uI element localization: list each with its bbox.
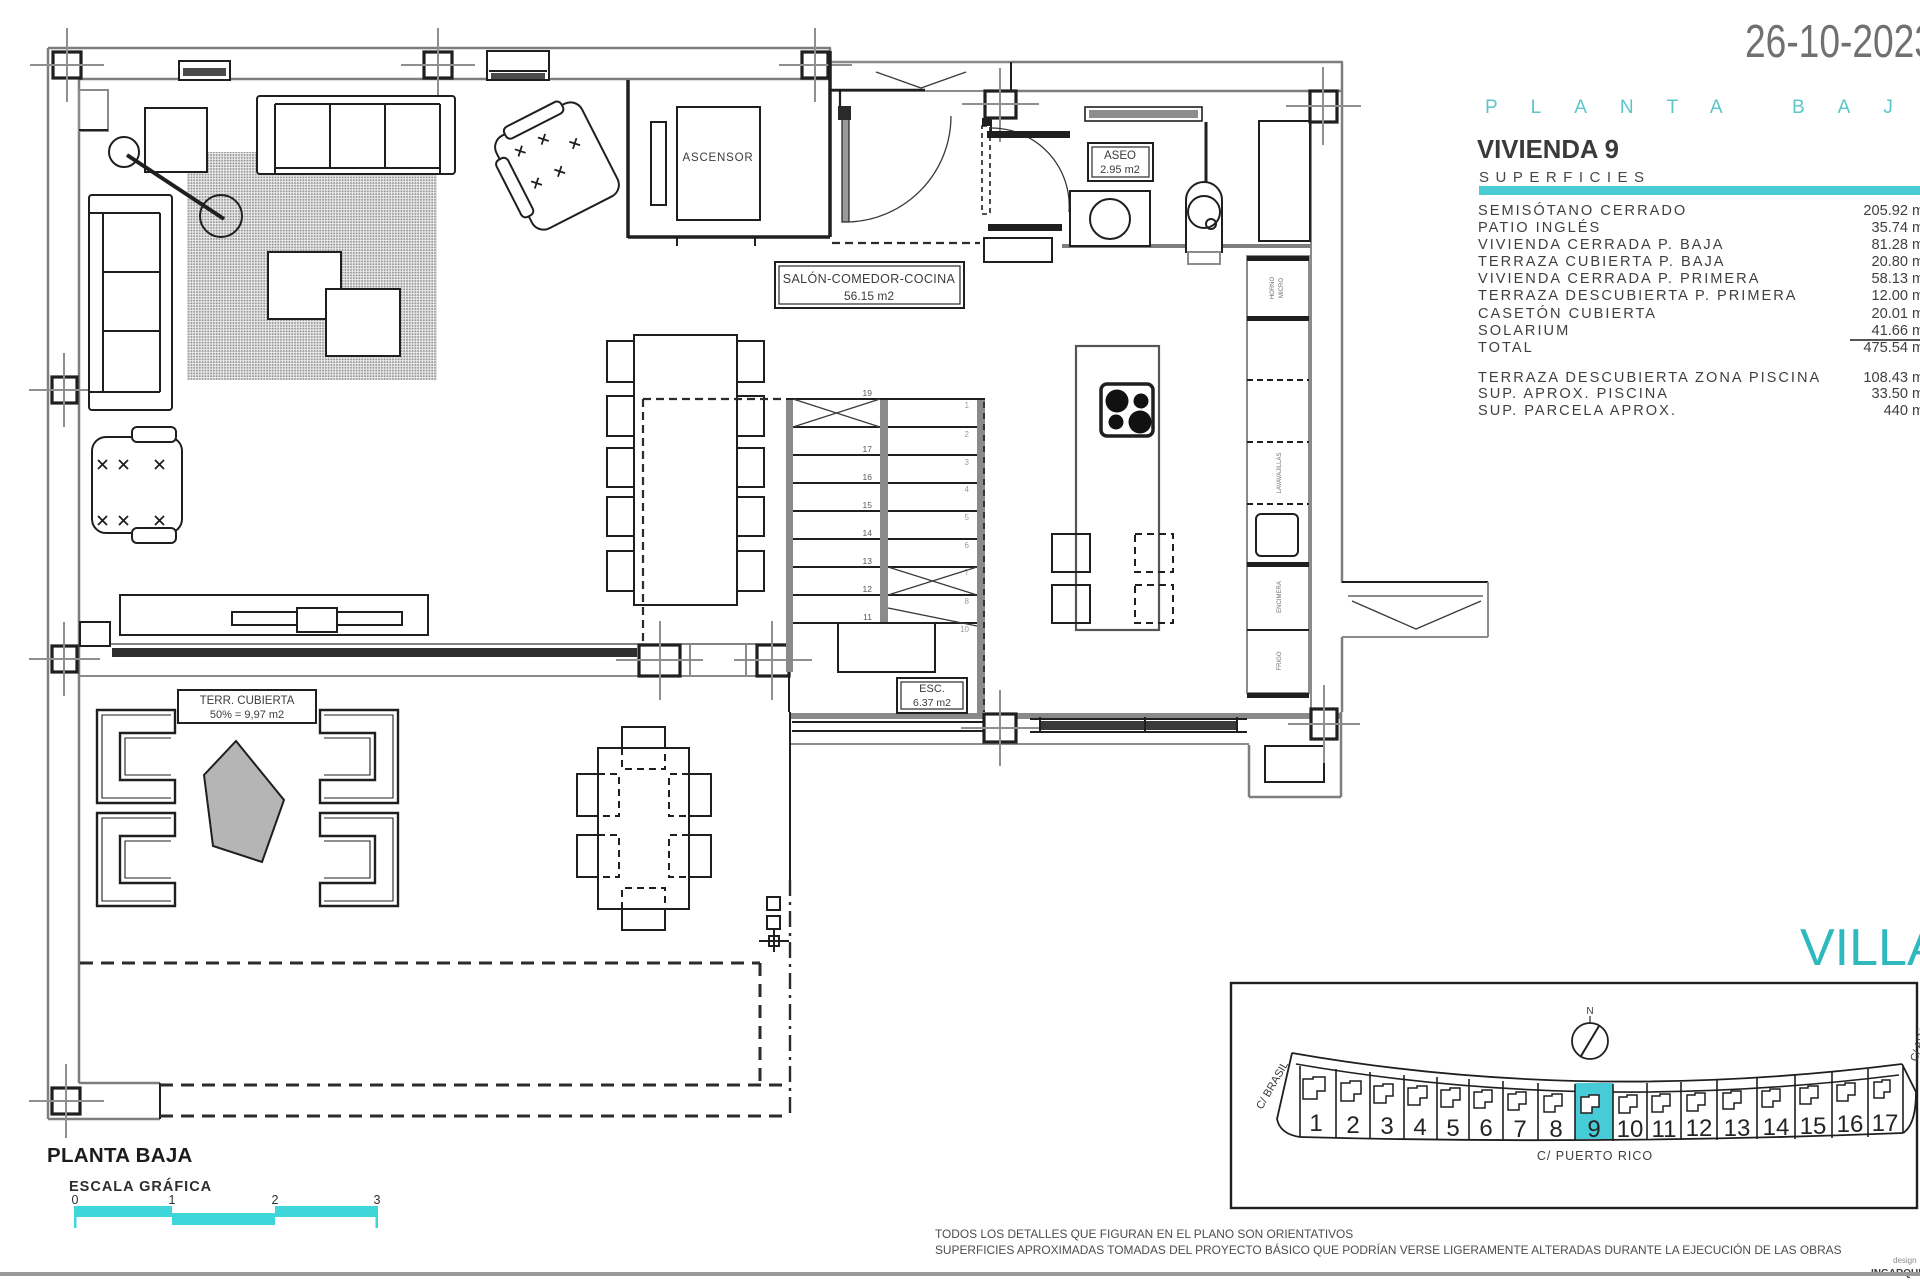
svg-text:14: 14 <box>863 528 873 538</box>
svg-text:SUPERFICIES APROXIMADAS TOMADA: SUPERFICIES APROXIMADAS TOMADAS DEL PROY… <box>935 1242 1842 1257</box>
svg-text:C/ PUERTO RICO: C/ PUERTO RICO <box>1537 1149 1653 1163</box>
svg-text:6: 6 <box>1479 1115 1492 1142</box>
svg-text:41.66: 41.66 <box>1871 323 1908 339</box>
svg-text:ASEO: ASEO <box>1104 150 1136 162</box>
svg-text:MICRO: MICRO <box>1279 278 1285 298</box>
svg-text:4: 4 <box>965 485 970 494</box>
svg-text:13: 13 <box>863 556 873 566</box>
svg-text:12: 12 <box>863 584 873 594</box>
svg-text:1: 1 <box>965 401 970 410</box>
svg-text:VILLAS: VILLAS <box>1800 919 1920 977</box>
svg-text:SUPERFICIES: SUPERFICIES <box>1479 169 1651 186</box>
svg-text:2: 2 <box>1346 1112 1359 1139</box>
svg-text:SUP. PARCELA APROX.: SUP. PARCELA APROX. <box>1478 403 1677 419</box>
svg-text:81.28: 81.28 <box>1871 237 1908 253</box>
svg-text:10: 10 <box>960 625 969 634</box>
svg-text:m2: m2 <box>1912 288 1920 304</box>
svg-text:m2: m2 <box>1912 370 1920 386</box>
svg-text:58.13: 58.13 <box>1871 271 1908 287</box>
svg-text:3: 3 <box>1380 1113 1393 1140</box>
svg-text:m2: m2 <box>1912 403 1920 419</box>
svg-text:TERRAZA CUBIERTA P. BAJA: TERRAZA CUBIERTA P. BAJA <box>1478 254 1726 270</box>
svg-text:8: 8 <box>965 597 970 606</box>
svg-text:35.74: 35.74 <box>1871 220 1908 236</box>
svg-text:13: 13 <box>1724 1115 1751 1142</box>
svg-text:12.00: 12.00 <box>1871 288 1908 304</box>
svg-text:m2: m2 <box>1912 306 1920 322</box>
svg-text:440: 440 <box>1884 403 1908 419</box>
svg-text:11: 11 <box>863 612 872 622</box>
svg-text:7: 7 <box>965 568 970 577</box>
svg-text:17: 17 <box>1872 1110 1899 1137</box>
svg-text:VIVIENDA 9: VIVIENDA 9 <box>1477 134 1619 164</box>
svg-text:3: 3 <box>374 1193 381 1207</box>
svg-text:475.54: 475.54 <box>1863 340 1908 356</box>
svg-text:7: 7 <box>1513 1116 1526 1143</box>
svg-text:108.43: 108.43 <box>1863 370 1908 386</box>
svg-text:26-10-2023: 26-10-2023 <box>1745 15 1920 67</box>
svg-text:m2: m2 <box>1912 254 1920 270</box>
svg-text:VIVIENDA CERRADA P. PRIMERA: VIVIENDA CERRADA P. PRIMERA <box>1478 271 1760 287</box>
svg-text:205.92: 205.92 <box>1863 203 1908 219</box>
svg-text:10: 10 <box>1617 1116 1644 1143</box>
svg-text:12: 12 <box>1686 1115 1713 1142</box>
svg-text:5: 5 <box>965 513 970 522</box>
svg-text:ESCALA GRÁFICA: ESCALA GRÁFICA <box>69 1178 212 1195</box>
svg-text:SEMISÓTANO CERRADO: SEMISÓTANO CERRADO <box>1478 202 1687 219</box>
svg-text:PLANTA: PLANTA <box>1485 97 1756 118</box>
svg-text:TERRAZA DESCUBIERTA P. PRIMERA: TERRAZA DESCUBIERTA P. PRIMERA <box>1478 288 1798 304</box>
svg-text:6.37 m2: 6.37 m2 <box>913 697 951 709</box>
svg-text:CASETÓN CUBIERTA: CASETÓN CUBIERTA <box>1478 305 1657 322</box>
svg-text:33.50: 33.50 <box>1871 386 1908 402</box>
svg-text:20.01: 20.01 <box>1871 306 1908 322</box>
svg-text:11: 11 <box>1652 1116 1677 1143</box>
svg-text:15: 15 <box>863 500 873 510</box>
svg-text:8: 8 <box>1549 1116 1562 1143</box>
svg-text:design: design <box>1893 1256 1917 1265</box>
svg-text:BAJA: BAJA <box>1792 97 1920 118</box>
svg-text:1: 1 <box>1309 1110 1322 1137</box>
svg-text:17: 17 <box>863 444 873 454</box>
svg-text:15: 15 <box>1800 1113 1827 1140</box>
svg-text:N: N <box>1586 1006 1593 1017</box>
svg-text:SALÓN-COMEDOR-COCINA: SALÓN-COMEDOR-COCINA <box>783 271 956 286</box>
svg-text:50% = 9,97 m2: 50% = 9,97 m2 <box>210 709 284 721</box>
svg-text:ESC.: ESC. <box>919 683 945 695</box>
svg-text:3: 3 <box>965 458 970 467</box>
svg-text:19: 19 <box>863 388 873 398</box>
svg-text:2.95 m2: 2.95 m2 <box>1100 164 1140 176</box>
svg-text:SOLARIUM: SOLARIUM <box>1478 323 1570 339</box>
svg-text:m2: m2 <box>1912 220 1920 236</box>
svg-text:TODOS LOS DETALLES QUE FIGURAN: TODOS LOS DETALLES QUE FIGURAN EN EL PLA… <box>935 1227 1353 1241</box>
svg-text:2: 2 <box>965 430 970 439</box>
svg-text:4: 4 <box>1413 1114 1426 1141</box>
svg-text:m2: m2 <box>1912 237 1920 253</box>
svg-text:5: 5 <box>1446 1115 1459 1142</box>
svg-text:ENCIMERA: ENCIMERA <box>1277 581 1283 613</box>
svg-text:HORNO: HORNO <box>1270 277 1276 300</box>
svg-text:m2: m2 <box>1912 203 1920 219</box>
svg-text:SUP. APROX. PISCINA: SUP. APROX. PISCINA <box>1478 386 1669 402</box>
svg-text:20.80: 20.80 <box>1871 254 1908 270</box>
svg-text:56.15 m2: 56.15 m2 <box>844 289 894 303</box>
svg-text:ASCENSOR: ASCENSOR <box>683 152 754 164</box>
svg-text:VIVIENDA CERRADA P. BAJA: VIVIENDA CERRADA P. BAJA <box>1478 237 1724 253</box>
svg-text:16: 16 <box>863 472 873 482</box>
svg-text:TOTAL: TOTAL <box>1478 340 1534 356</box>
svg-text:1: 1 <box>169 1193 176 1207</box>
svg-text:PLANTA BAJA: PLANTA BAJA <box>47 1144 193 1167</box>
svg-text:0: 0 <box>72 1193 79 1207</box>
svg-text:m2: m2 <box>1912 323 1920 339</box>
svg-text:FRIGO: FRIGO <box>1277 651 1283 670</box>
svg-text:m2: m2 <box>1912 340 1920 356</box>
svg-text:2: 2 <box>272 1193 279 1207</box>
svg-text:TERRAZA DESCUBIERTA ZONA PISC: TERRAZA DESCUBIERTA ZONA PISCINA <box>1478 370 1821 386</box>
svg-text:6: 6 <box>965 541 970 550</box>
svg-text:9: 9 <box>1587 1116 1600 1143</box>
svg-text:PATIO INGLÉS: PATIO INGLÉS <box>1478 219 1601 236</box>
svg-text:m2: m2 <box>1912 386 1920 402</box>
svg-text:LAVAVAJILLAS: LAVAVAJILLAS <box>1277 453 1283 494</box>
svg-text:TERR. CUBIERTA: TERR. CUBIERTA <box>200 695 295 707</box>
svg-text:16: 16 <box>1837 1111 1864 1138</box>
svg-text:m2: m2 <box>1912 271 1920 287</box>
svg-text:14: 14 <box>1763 1114 1790 1141</box>
